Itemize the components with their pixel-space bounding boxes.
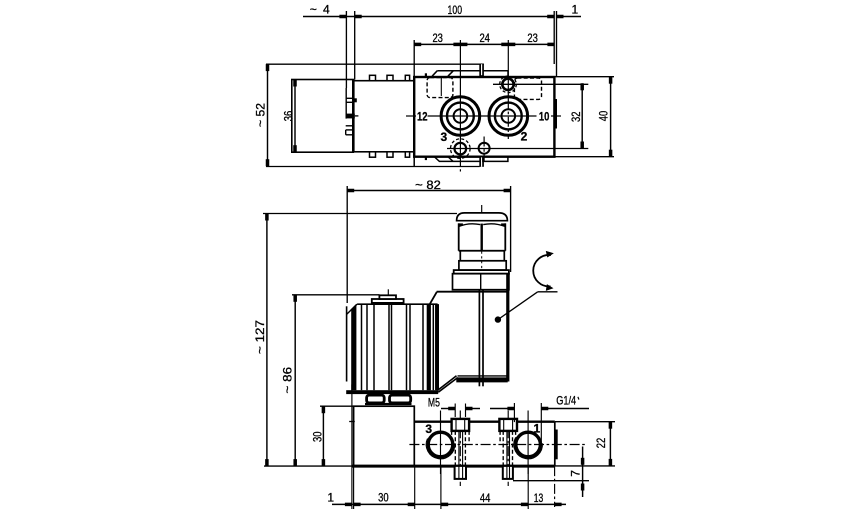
svg-text:1: 1 [571,3,578,17]
svg-text:30: 30 [378,491,389,505]
svg-text:23: 23 [527,31,538,45]
svg-text:3: 3 [425,422,432,436]
svg-text:~ 127: ~ 127 [253,320,267,354]
svg-text:13: 13 [534,491,544,505]
svg-text:7: 7 [569,470,583,477]
svg-text:1: 1 [327,491,334,505]
svg-text:100: 100 [448,3,463,17]
svg-text:30: 30 [311,431,325,442]
svg-text:32: 32 [569,111,583,122]
svg-text:40: 40 [597,111,611,122]
svg-text:3: 3 [441,130,448,144]
svg-text:~ 86: ~ 86 [281,367,295,394]
svg-text:1: 1 [533,422,540,436]
svg-text:10: 10 [539,109,550,123]
svg-text:12: 12 [417,109,428,123]
svg-text:24: 24 [479,31,490,45]
svg-text:~: ~ [310,2,317,16]
svg-text:22: 22 [594,438,608,449]
svg-text:36: 36 [282,111,296,122]
svg-text:44: 44 [480,491,491,505]
svg-text:2: 2 [521,130,528,144]
svg-text:G1/4: G1/4 [556,393,576,407]
svg-text:~ 82: ~ 82 [415,178,441,192]
svg-text:4: 4 [323,3,330,17]
svg-text:M5: M5 [428,396,440,410]
svg-text:~ 52: ~ 52 [253,103,267,127]
svg-text:23: 23 [432,31,443,45]
